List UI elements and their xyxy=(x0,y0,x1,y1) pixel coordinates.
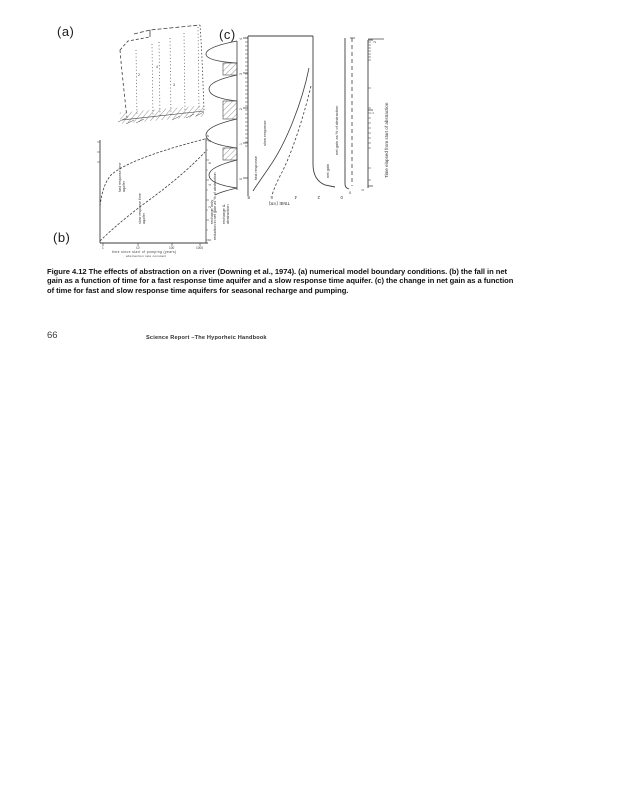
svg-text:6: 6 xyxy=(208,162,212,164)
svg-text:0: 0 xyxy=(340,195,343,200)
time-axis-caption-2: abstraction rate constant xyxy=(126,254,166,258)
net-gain-axis-label: reduction in net gain as % of abstractio… xyxy=(213,172,217,240)
figure-a-sketch: 2 4 3 xyxy=(112,16,212,128)
svg-text:1: 1 xyxy=(239,143,243,145)
svg-text:aquifer: aquifer xyxy=(142,212,146,224)
footer-report-title: Science Report –The Hyporheic Handbook xyxy=(146,335,267,341)
svg-text:0: 0 xyxy=(208,239,212,241)
svg-text:3: 3 xyxy=(239,73,243,75)
slow-aquifer-label: slow response time aquifer xyxy=(138,193,146,224)
svg-text:1000: 1000 xyxy=(196,246,203,250)
svg-text:4: 4 xyxy=(239,38,243,40)
svg-text:8: 8 xyxy=(208,140,212,142)
document-page: (a) (c) (b) 2 4 xyxy=(0,0,618,800)
elapsed-time-axis xyxy=(350,38,384,188)
model-mark-3: 3 xyxy=(173,83,175,87)
svg-text:4: 4 xyxy=(294,195,297,200)
figure-caption: Figure 4.12 The effects of abstraction o… xyxy=(47,267,577,295)
y-tick-labels: 8 6 4 2 0 xyxy=(208,140,212,241)
svg-text:1: 1 xyxy=(371,112,375,114)
left-tick-labels: 4 3 2 1 0 xyxy=(239,38,243,180)
svg-text:2: 2 xyxy=(208,206,212,208)
svg-text:1: 1 xyxy=(102,246,104,250)
time-axis-labels: 8 6 4 2 0 TIME (YR) xyxy=(247,195,343,206)
caption-line-3: of time for fast and slow response time … xyxy=(47,286,577,295)
caption-line-2: gain as a function of time for a fast re… xyxy=(47,276,577,285)
figure-b-chart: fast response time aquifer slow response… xyxy=(50,128,230,266)
model-base-hatching xyxy=(118,105,204,124)
page-number: 66 xyxy=(47,330,58,341)
svg-text:2: 2 xyxy=(317,195,320,200)
curve-label-slow: slow response xyxy=(262,120,267,146)
figure-c-chart: recharge only recharge & abstraction 4 3… xyxy=(198,28,424,266)
model-box-outline xyxy=(120,25,204,120)
net-gain-axis-label: net gain as % of abstraction xyxy=(334,106,339,155)
elapsed-tick-labels: 2 1 0 xyxy=(361,41,377,191)
elapsed-time-axis-label: Time elapsed from start of abstraction xyxy=(384,102,389,178)
caption-line-1: Figure 4.12 The effects of abstraction o… xyxy=(47,267,577,276)
svg-text:aquifer: aquifer xyxy=(122,180,126,192)
svg-text:8: 8 xyxy=(247,195,250,200)
corner-mark: s xyxy=(207,133,209,138)
dashed-line-zero: 0 xyxy=(349,190,352,195)
model-mark-1: 2 xyxy=(138,73,140,77)
panel-label-a: (a) xyxy=(57,24,74,39)
fast-aquifer-label: fast response time aquifer xyxy=(118,163,126,192)
svg-text:2: 2 xyxy=(373,41,377,43)
svg-text:0: 0 xyxy=(361,189,365,191)
svg-text:2: 2 xyxy=(239,108,243,110)
aquifer-response-curves xyxy=(100,139,205,241)
model-grid-lines xyxy=(136,27,199,118)
svg-text:4: 4 xyxy=(208,184,212,186)
svg-text:6: 6 xyxy=(270,195,273,200)
model-mark-2: 4 xyxy=(156,65,158,69)
time-axis-title: TIME (YR) xyxy=(268,201,290,206)
curve-label-fast: fast response xyxy=(253,155,258,180)
net-gain-small-label: net gain xyxy=(325,164,330,178)
svg-text:0: 0 xyxy=(239,178,243,180)
